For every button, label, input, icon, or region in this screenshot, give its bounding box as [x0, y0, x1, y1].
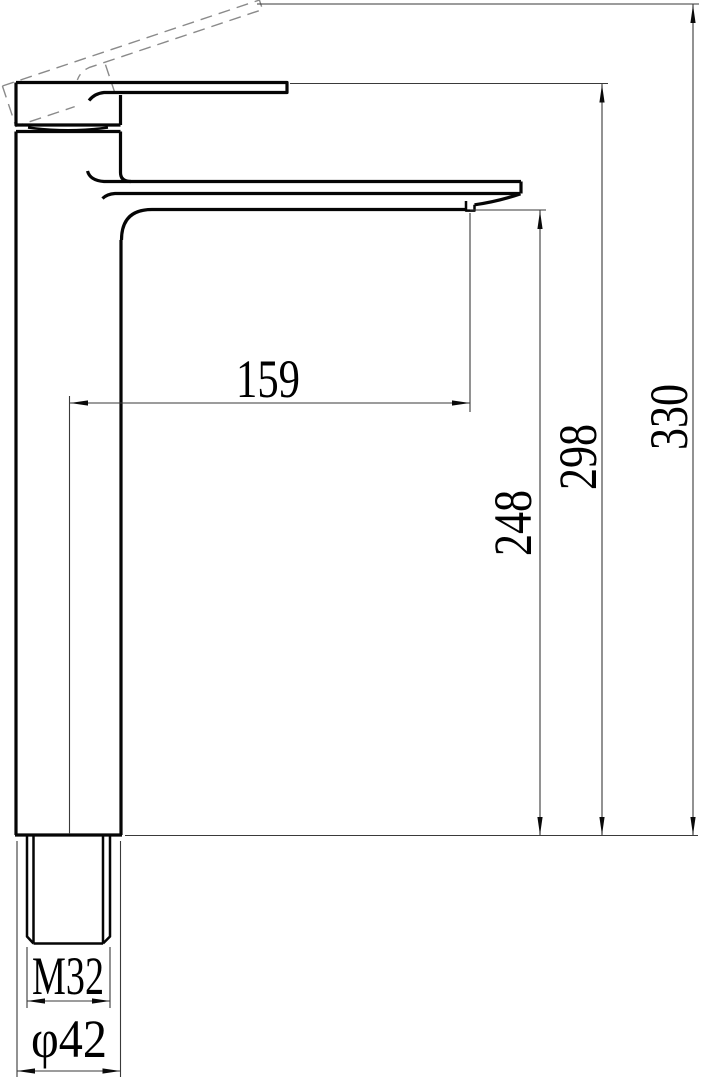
- spout-front-edge: [103, 194, 520, 199]
- arrowhead-top: [599, 85, 604, 103]
- technical-drawing-page: 159 248 298 330: [0, 0, 702, 1080]
- aerator-notch: [466, 201, 475, 211]
- dimension-mounting-thread: M32: [27, 946, 110, 1008]
- body-right-edge-upper: [121, 132, 132, 182]
- dimension-spout-reach: 159: [70, 213, 471, 834]
- dimension-label-298: 298: [548, 424, 608, 490]
- faucet-dimension-drawing: 159 248 298 330: [0, 0, 702, 1080]
- lever-outline: [16, 83, 287, 101]
- arrowhead-left: [17, 1068, 35, 1073]
- spout-underside-root-curve: [122, 210, 153, 241]
- dimension-label-m32: M32: [32, 946, 104, 1006]
- raised-handle-base-left-dashed: [2, 66, 74, 126]
- spout-tip-underside-curve: [475, 194, 521, 205]
- swivel-joint-seam: [28, 128, 108, 131]
- dimension-label-phi42: φ42: [31, 1009, 107, 1069]
- arrowhead-right: [103, 1068, 121, 1073]
- arrowhead-top: [537, 211, 542, 229]
- arrowhead-right: [452, 400, 470, 405]
- arrowhead-bottom: [690, 817, 695, 835]
- handle-base-outline: [16, 83, 121, 126]
- raised-handle-base-right-dashed: [105, 65, 115, 93]
- spout-top-edge: [88, 171, 522, 182]
- arrowhead-top: [690, 5, 695, 23]
- dimension-label-159: 159: [236, 349, 300, 409]
- dimension-spout-outlet-height: 248: [470, 210, 546, 836]
- dimension-body-top-height: 298: [290, 84, 608, 836]
- dimension-label-248: 248: [483, 490, 543, 556]
- arrowhead-left: [70, 400, 88, 405]
- arrowhead-bottom: [599, 817, 604, 835]
- raised-handle-dashed-outline: [2, 0, 272, 126]
- faucet-outline: [15, 83, 521, 944]
- arrowhead-bottom: [537, 817, 542, 835]
- dimension-overall-height: 330: [257, 4, 699, 836]
- dimension-label-330: 330: [639, 384, 699, 450]
- raised-lever-dashed: [2, 0, 265, 103]
